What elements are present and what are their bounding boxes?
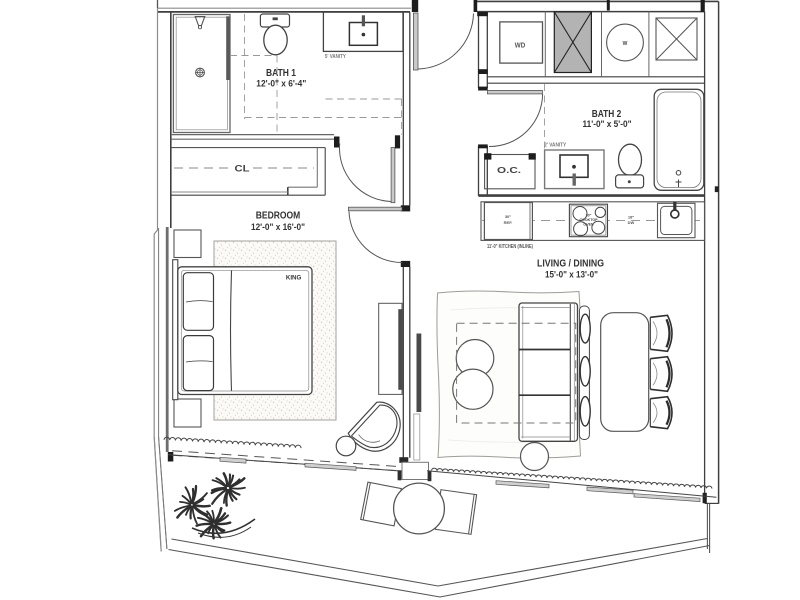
svg-text:O.C.: O.C. <box>497 166 521 175</box>
svg-text:LIVING / DINING: LIVING / DINING <box>537 258 604 269</box>
svg-text:CL: CL <box>235 163 250 173</box>
svg-text:11'-0" KITCHEN (INLINE): 11'-0" KITCHEN (INLINE) <box>487 244 533 250</box>
svg-text:12'-0" x 6'-4": 12'-0" x 6'-4" <box>256 78 306 88</box>
svg-text:2' VANITY: 2' VANITY <box>544 143 567 149</box>
svg-text:11'-0" x 5'-0": 11'-0" x 5'-0" <box>583 119 632 129</box>
svg-text:12'-0" x 16'-0": 12'-0" x 16'-0" <box>251 222 305 232</box>
svg-text:5' VANITY: 5' VANITY <box>325 54 347 60</box>
svg-text:REF.: REF. <box>504 220 513 225</box>
svg-text:KING: KING <box>286 275 302 282</box>
svg-text:30″: 30″ <box>586 214 592 218</box>
svg-text:W: W <box>623 41 628 47</box>
svg-text:15'-0" x 13'-0": 15'-0" x 13'-0" <box>545 269 598 279</box>
svg-text:BATH 2: BATH 2 <box>592 109 622 120</box>
svg-text:BEDROOM: BEDROOM <box>256 210 301 221</box>
svg-text:18″: 18″ <box>628 215 634 220</box>
svg-text:COOKTOP: COOKTOP <box>579 218 598 222</box>
svg-text:30″: 30″ <box>505 214 511 219</box>
svg-text:DW: DW <box>628 220 635 225</box>
svg-text:WD: WD <box>515 41 526 50</box>
svg-text:OVEN: OVEN <box>583 223 594 227</box>
